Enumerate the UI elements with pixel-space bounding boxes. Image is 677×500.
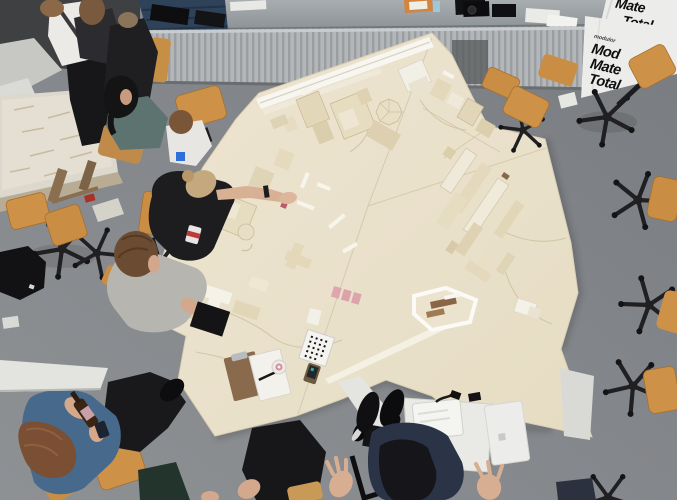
face bbox=[120, 89, 132, 105]
window-sill bbox=[225, 0, 620, 30]
tape-roll bbox=[272, 360, 286, 374]
head bbox=[169, 110, 193, 134]
camera bbox=[463, 1, 490, 17]
white-outlined-site bbox=[414, 288, 476, 330]
studio-photo: Mate Total modulor Mod Mate Total bbox=[0, 0, 677, 500]
head bbox=[118, 12, 138, 28]
hair-bun bbox=[182, 170, 194, 182]
white-board-floor bbox=[560, 368, 594, 440]
white-laptop bbox=[484, 401, 530, 466]
studio-scene: Mate Total modulor Mod Mate Total bbox=[0, 0, 677, 500]
camera-2 bbox=[492, 4, 516, 17]
papers bbox=[230, 0, 266, 11]
blue-object bbox=[176, 152, 185, 161]
water-bottle bbox=[433, 1, 440, 12]
face bbox=[148, 255, 160, 273]
